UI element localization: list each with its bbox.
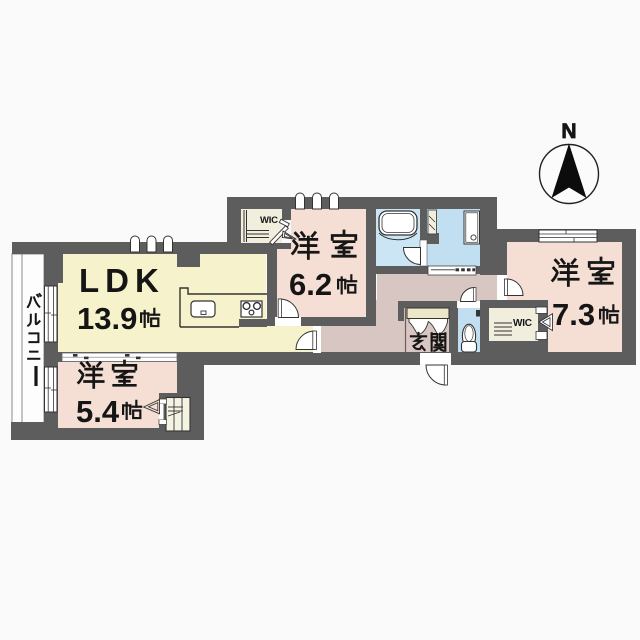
svg-text:5.4: 5.4 — [76, 394, 120, 429]
svg-text:13.9: 13.9 — [77, 301, 137, 336]
svg-text:LDK: LDK — [79, 262, 165, 299]
svg-text:7.3: 7.3 — [552, 297, 595, 332]
svg-text:N: N — [561, 120, 576, 143]
svg-text:WIC: WIC — [513, 318, 532, 329]
svg-text:6.2: 6.2 — [289, 267, 332, 302]
svg-text:WIC: WIC — [260, 215, 278, 226]
